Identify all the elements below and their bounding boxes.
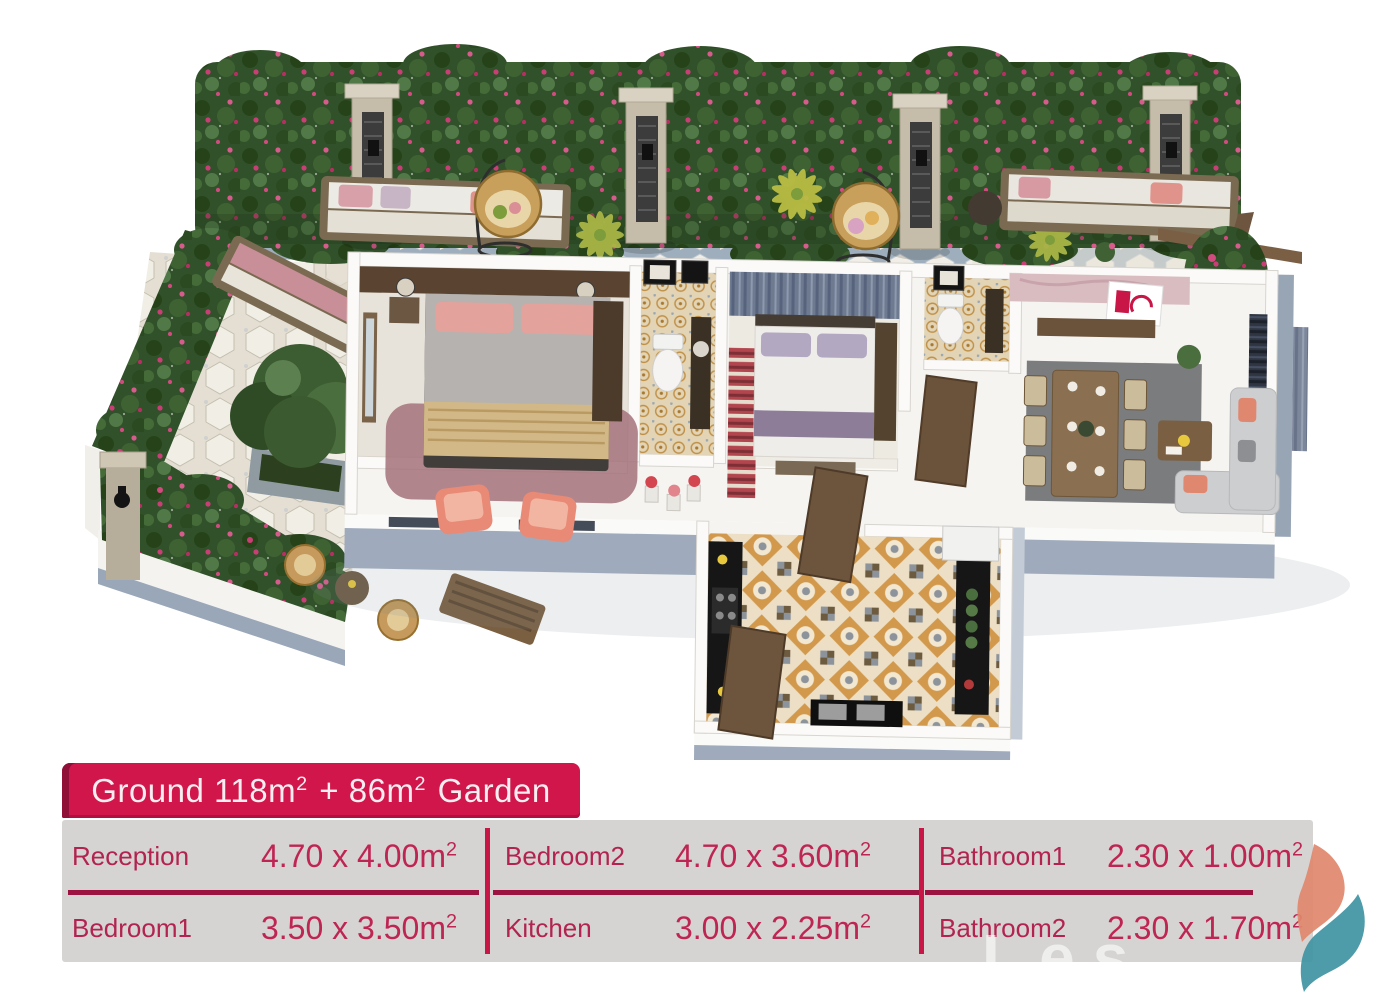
room-name: Bedroom1 (72, 913, 192, 944)
table-column-1: Reception 4.70 x 4.00m2 Bedroom1 3.50 x … (62, 820, 487, 962)
wardrobe (592, 301, 623, 422)
bathroom1 (640, 260, 716, 455)
room-size: 3.00 x 2.25m2 (675, 910, 871, 947)
drum-table (968, 191, 1002, 225)
armchair (518, 490, 578, 543)
nightstand (389, 297, 419, 324)
room-size: 4.70 x 4.00m2 (261, 838, 457, 875)
room-name: Reception (72, 841, 189, 872)
outdoor-sofa-right (999, 168, 1239, 238)
room-name: Kitchen (505, 913, 592, 944)
vanity (690, 317, 711, 429)
table-row: Bedroom1 3.50 x 3.50m2 (62, 895, 487, 961)
bathroom2 (924, 266, 1010, 362)
plan-title: Ground 118m2 + 86m2 Garden (62, 763, 580, 818)
tv-console (1037, 318, 1155, 338)
bedroom2-bed (754, 314, 876, 458)
table-row: Bedroom2 4.70 x 3.60m2 (487, 823, 921, 889)
watermark-text: Les (982, 920, 1146, 994)
table-row: Kitchen 3.00 x 2.25m2 (487, 895, 921, 961)
table-column-2: Bedroom2 4.70 x 3.60m2 Kitchen 3.00 x 2.… (487, 820, 921, 962)
bedroom1-bed (423, 294, 610, 472)
column-divider (485, 828, 490, 954)
room-size: 3.50 x 3.50m2 (261, 910, 457, 947)
striped-rug (727, 348, 757, 499)
building (342, 252, 1309, 760)
room-name: Bedroom2 (505, 841, 625, 872)
table-row: Bathroom1 2.30 x 1.00m2 (921, 823, 1313, 889)
garden-lamp-post (100, 452, 146, 580)
room-name: Bathroom1 (939, 841, 1066, 872)
entrance-door (915, 375, 976, 486)
room-size: 4.70 x 3.60m2 (675, 838, 871, 875)
table-row: Reception 4.70 x 4.00m2 (62, 823, 487, 889)
toilet (652, 334, 683, 392)
dining-table (1051, 370, 1119, 497)
vanity (985, 289, 1004, 353)
curtain-right (1292, 327, 1308, 451)
toilet (937, 294, 964, 345)
kitchen-counter-right (955, 552, 991, 715)
page: { "title": { "t1": "Ground 118m", "s1": … (0, 0, 1400, 1000)
bedroom2 (727, 272, 900, 501)
floorplan-render (0, 0, 1400, 760)
curtains (729, 272, 900, 319)
wardrobe (874, 323, 897, 441)
coffee-table (1158, 420, 1212, 461)
plan-title-text: Ground 118m2 + 86m2 Garden (91, 772, 550, 810)
column-divider (919, 828, 924, 954)
fridge (942, 526, 998, 561)
room-size: 2.30 x 1.00m2 (1107, 838, 1303, 875)
brand-logo (1278, 836, 1378, 996)
armchair (434, 483, 493, 535)
